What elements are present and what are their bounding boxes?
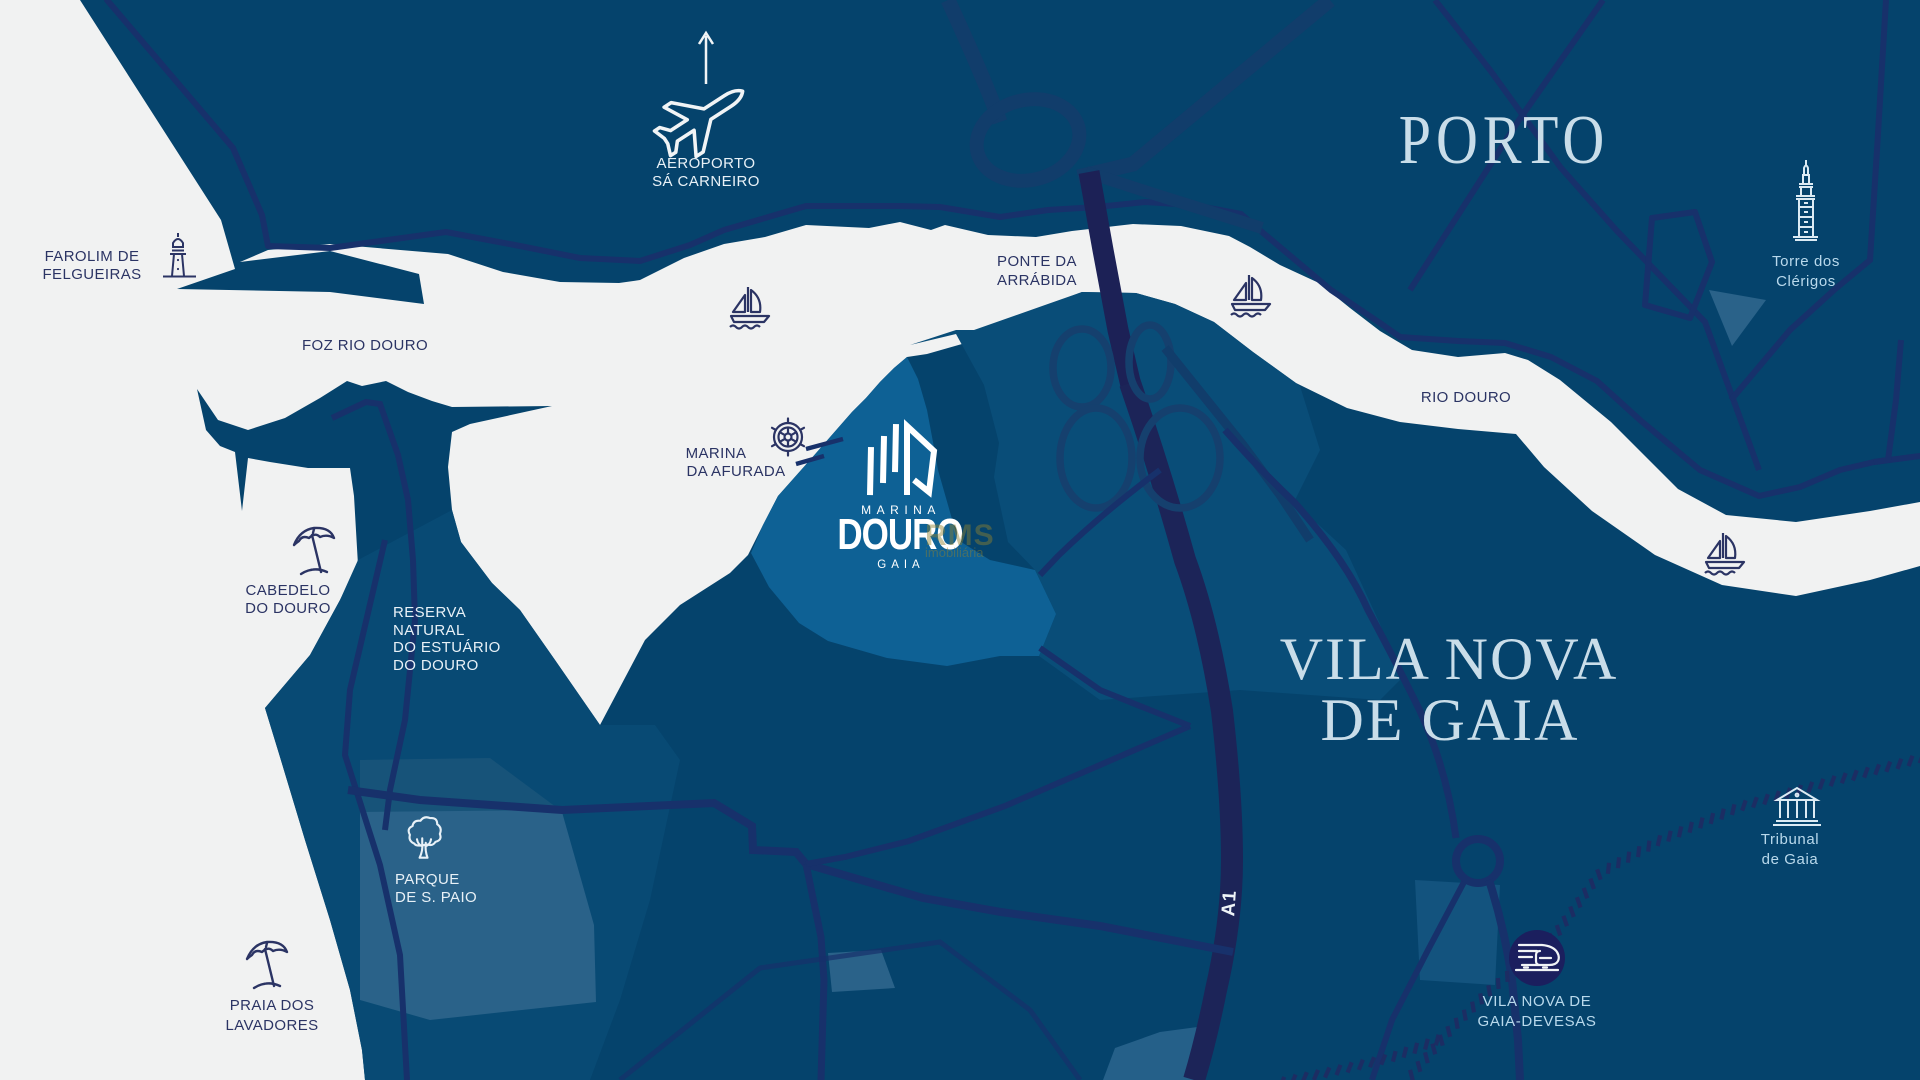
svg-text:FELGUEIRAS: FELGUEIRAS bbox=[42, 266, 141, 283]
svg-text:VILA NOVA: VILA NOVA bbox=[1280, 626, 1619, 692]
svg-text:FAROLIM DE: FAROLIM DE bbox=[45, 248, 140, 265]
svg-text:AEROPORTO: AEROPORTO bbox=[657, 155, 756, 172]
svg-text:PORTO: PORTO bbox=[1399, 101, 1610, 178]
svg-text:A1: A1 bbox=[1218, 889, 1241, 917]
svg-text:DE S. PAIO: DE S. PAIO bbox=[395, 889, 477, 906]
svg-text:RESERVA: RESERVA bbox=[393, 604, 466, 621]
svg-text:CABEDELO: CABEDELO bbox=[246, 582, 331, 599]
svg-text:VILA NOVA DE: VILA NOVA DE bbox=[1483, 993, 1592, 1010]
svg-text:DE GAIA: DE GAIA bbox=[1321, 687, 1580, 753]
svg-text:PONTE DA: PONTE DA bbox=[997, 253, 1077, 270]
svg-text:Torre dos: Torre dos bbox=[1772, 253, 1840, 270]
svg-text:DO DOURO: DO DOURO bbox=[245, 600, 331, 617]
svg-text:DO DOURO: DO DOURO bbox=[393, 657, 479, 674]
svg-text:imobiliária: imobiliária bbox=[925, 545, 984, 560]
svg-text:LAVADORES: LAVADORES bbox=[225, 1017, 318, 1034]
svg-text:DA AFURADA: DA AFURADA bbox=[686, 463, 785, 480]
svg-text:MARINA: MARINA bbox=[686, 445, 747, 462]
svg-text:Tribunal: Tribunal bbox=[1761, 831, 1819, 848]
svg-text:RIO DOURO: RIO DOURO bbox=[1421, 389, 1511, 406]
svg-text:ARRÁBIDA: ARRÁBIDA bbox=[997, 272, 1077, 289]
svg-text:Clérigos: Clérigos bbox=[1776, 273, 1836, 290]
svg-text:FOZ RIO DOURO: FOZ RIO DOURO bbox=[302, 337, 428, 354]
svg-text:PARQUE: PARQUE bbox=[395, 871, 460, 888]
svg-text:GAIA-DEVESAS: GAIA-DEVESAS bbox=[1478, 1013, 1597, 1030]
svg-text:NATURAL: NATURAL bbox=[393, 622, 465, 639]
svg-text:DO ESTUÁRIO: DO ESTUÁRIO bbox=[393, 639, 501, 656]
svg-text:PRAIA DOS: PRAIA DOS bbox=[230, 997, 314, 1014]
svg-text:GAIA: GAIA bbox=[877, 559, 924, 571]
svg-text:SÁ CARNEIRO: SÁ CARNEIRO bbox=[652, 173, 760, 190]
svg-text:de Gaia: de Gaia bbox=[1762, 851, 1819, 868]
